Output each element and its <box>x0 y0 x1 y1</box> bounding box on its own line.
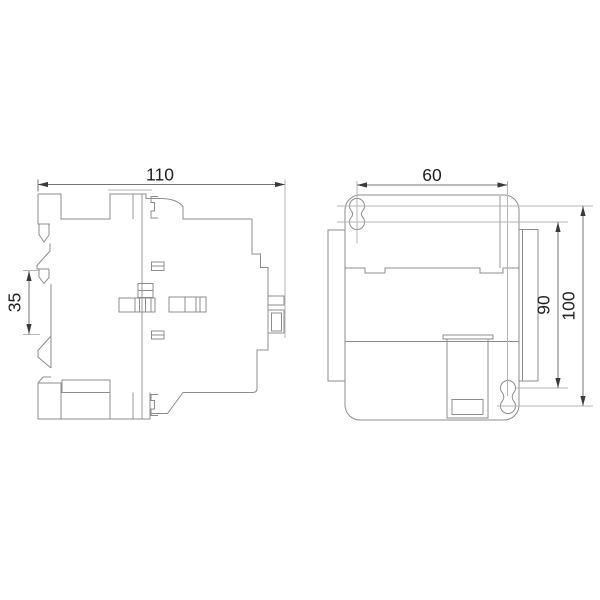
manual-slide-center <box>169 297 206 312</box>
mounting-tab-left <box>328 230 345 381</box>
dimension-drawing-canvas: 110 35 <box>0 0 600 600</box>
dim-arrow-35-bottom <box>26 324 31 334</box>
side-body-outline <box>38 194 268 419</box>
coil-terminal-lip <box>443 335 493 339</box>
dim-arrow-90-bottom <box>555 378 560 388</box>
dim-label-100: 100 <box>559 291 579 320</box>
keyhole-center-lines <box>337 181 593 406</box>
latch-clip-bottom <box>151 395 158 416</box>
terminal-lower <box>268 310 284 333</box>
dimension-height-100: 100 <box>559 206 586 406</box>
front-division-line <box>345 268 519 273</box>
dim-arrow-90-top <box>555 222 560 232</box>
dim-arrow-60-right <box>498 182 508 187</box>
front-body-outline <box>345 195 519 420</box>
dimension-overall-depth: 110 <box>38 165 285 339</box>
detail-box-left <box>138 284 153 298</box>
dim-arrow-35-top <box>26 271 31 281</box>
terminal-upper <box>268 296 284 305</box>
keyhole-slot-bottom <box>501 381 516 414</box>
panel-seam-lines <box>133 194 142 419</box>
dim-arrow-100-bottom <box>580 396 585 406</box>
side-view: 110 35 <box>5 165 286 420</box>
dim-label-35: 35 <box>5 293 25 312</box>
dim-label-110: 110 <box>146 165 174 185</box>
dimension-hole-spacing: 60 <box>357 165 508 188</box>
coil-terminal-box <box>447 339 488 418</box>
dim-arrow-100-top <box>580 206 585 216</box>
label-window <box>452 400 483 415</box>
front-view: 60 90 100 <box>328 165 593 420</box>
dim-arrow-110-left <box>38 182 48 187</box>
detail-rect-lower <box>152 331 165 339</box>
dim-label-90: 90 <box>534 295 554 315</box>
detail-rect-upper <box>152 262 165 271</box>
technical-drawing-page: 110 35 <box>0 0 600 600</box>
dimension-din-rail: 35 <box>5 271 41 335</box>
din-clip-profile <box>37 194 61 419</box>
dim-arrow-110-right <box>275 182 285 187</box>
dim-ext-35 <box>23 271 40 335</box>
manual-slide-left <box>119 298 155 312</box>
dim-label-60: 60 <box>422 165 442 185</box>
dim-arrow-60-left <box>357 182 367 187</box>
bottom-notch-block <box>62 380 150 419</box>
latch-clip-top <box>151 197 158 219</box>
